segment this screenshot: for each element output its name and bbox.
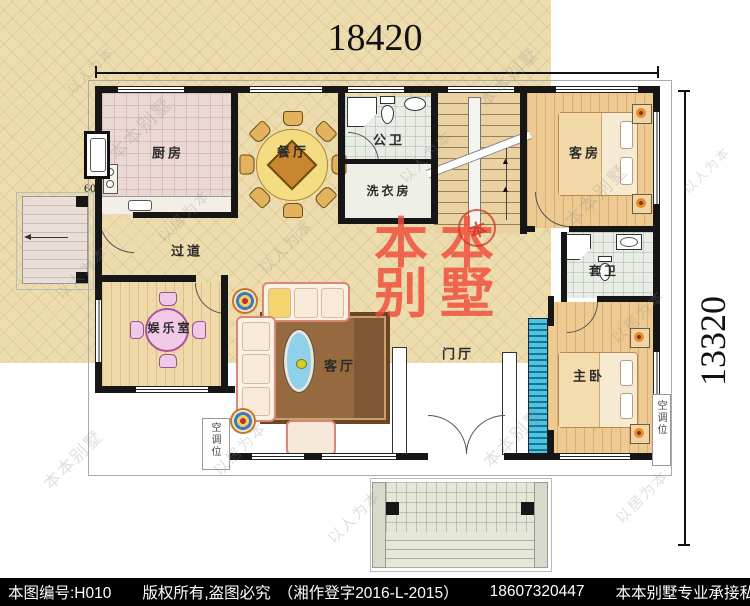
sofa-cushion — [242, 322, 270, 351]
window — [448, 86, 514, 93]
stair-up-arrow: ▲ — [501, 184, 510, 194]
kitchen-sink — [128, 200, 152, 211]
wall — [133, 212, 231, 218]
game-chair — [159, 292, 177, 306]
window — [95, 300, 102, 362]
porch-column — [521, 502, 534, 515]
direction-arrow-line — [28, 237, 68, 238]
window — [560, 453, 630, 460]
window — [653, 112, 660, 204]
room-label-public-bath: 公卫 — [373, 134, 405, 147]
wall — [548, 430, 554, 460]
window — [118, 86, 184, 93]
sofa-three-seat — [236, 316, 276, 422]
top-dimension-text: 18420 — [0, 16, 750, 60]
wall — [597, 296, 653, 302]
room-label-living: 客厅 — [324, 360, 356, 373]
window — [250, 86, 322, 93]
dim-tick — [95, 66, 97, 78]
bay-inner — [90, 138, 106, 172]
porch-side — [372, 482, 386, 568]
bath-sink — [404, 97, 426, 111]
wall — [221, 275, 228, 393]
room-label-entertainment: 娱乐室 — [147, 322, 192, 334]
bed-blanket — [559, 353, 600, 427]
dim-tick — [678, 544, 690, 546]
footer-bar: 本图编号:H010 版权所有,盗图必究 （湘作登字2016-L-2015） 18… — [0, 578, 750, 606]
stove-burner — [106, 180, 114, 188]
brand-line1: 本本 — [348, 220, 532, 270]
sofa-cushion — [294, 288, 317, 318]
rug-pattern-band — [354, 318, 384, 418]
game-chair — [192, 321, 206, 339]
room-label-master: 主卧 — [573, 370, 605, 383]
pillow — [620, 360, 633, 386]
wall — [345, 159, 438, 164]
footer-tagline: 本本别墅专业承接私宅设计 — [615, 581, 750, 603]
toilet-tank — [380, 96, 395, 104]
side-porch-steps — [22, 196, 88, 284]
porch-column — [76, 196, 88, 207]
ac-label-right: 空调位 — [655, 400, 666, 436]
direction-arrow-head — [24, 234, 31, 240]
brand-line2: 别墅 — [348, 270, 532, 320]
decor-screen — [528, 318, 548, 456]
foyer-partition — [392, 347, 407, 455]
wall — [102, 275, 196, 282]
room-label-laundry: 洗衣房 — [366, 185, 411, 197]
wall — [561, 232, 567, 302]
porch-column — [76, 272, 88, 283]
dim-tick — [657, 66, 659, 78]
seal-character: 本 — [465, 213, 489, 242]
dining-chair — [240, 155, 255, 175]
nightstand — [632, 104, 652, 124]
kitchen-bay-window — [84, 131, 110, 179]
dining-chair — [283, 111, 303, 126]
room-label-kitchen: 厨房 — [152, 147, 184, 160]
wall — [400, 453, 428, 460]
wall — [520, 93, 527, 234]
porch-column — [386, 502, 399, 515]
room-label-ensuite: 套卫 — [589, 265, 619, 277]
sofa-cushion — [321, 288, 344, 318]
floor-plan-sheet: 18420 13320 600 ▲ ▲ — [0, 0, 750, 606]
stair-up-arrow: ▲ — [501, 156, 510, 166]
porch-platform — [386, 482, 534, 532]
side-table — [230, 408, 256, 434]
window — [556, 86, 638, 93]
room-label-foyer: 门厅 — [442, 348, 474, 361]
brand-watermark: 本本 别墅 — [348, 220, 532, 319]
footer-phone: 18607320447 — [490, 583, 585, 601]
porch-steps — [386, 532, 534, 568]
ensuite-sink — [620, 237, 638, 247]
coffee-table — [284, 330, 314, 392]
diagonal-watermark: 以人为本 — [678, 142, 734, 198]
wall — [548, 296, 554, 326]
wall — [561, 296, 567, 302]
top-dimension-line — [95, 72, 658, 74]
wall — [338, 93, 345, 224]
nightstand — [630, 328, 650, 348]
nightstand — [630, 424, 650, 444]
sofa-cushion — [242, 354, 270, 383]
room-label-guest: 客房 — [569, 147, 601, 160]
window — [348, 86, 404, 93]
footer-rights: 版权所有,盗图必究 — [142, 581, 270, 603]
game-chair — [159, 354, 177, 368]
footer-plan-number: 本图编号:H010 — [8, 581, 111, 603]
right-dimension-line — [684, 90, 686, 545]
dining-chair — [283, 203, 303, 218]
room-label-hallway: 过道 — [171, 245, 203, 258]
window — [136, 386, 208, 393]
room-label-dining: 餐厅 — [277, 146, 309, 159]
table-decor — [296, 359, 307, 369]
porch-side — [534, 482, 548, 568]
sofa-cushion — [268, 288, 291, 318]
dim-tick — [678, 90, 690, 92]
master-bed — [558, 352, 638, 428]
wall — [231, 93, 238, 218]
right-dimension-text: 13320 — [692, 296, 734, 386]
pillow — [620, 393, 633, 419]
wall — [569, 226, 653, 232]
red-seal-stamp: 本 — [458, 209, 496, 247]
window — [322, 453, 396, 460]
footer-registration: （湘作登字2016-L-2015） — [278, 581, 459, 603]
nightstand — [632, 194, 652, 214]
pillow — [620, 157, 633, 185]
pillow — [620, 121, 633, 149]
game-chair — [130, 321, 144, 339]
window — [252, 453, 304, 460]
sofa-two-seat — [262, 282, 350, 322]
armchair — [286, 420, 336, 456]
ac-label-left: 空调位 — [209, 422, 220, 458]
toilet-tank — [598, 256, 612, 262]
side-table — [232, 288, 258, 314]
